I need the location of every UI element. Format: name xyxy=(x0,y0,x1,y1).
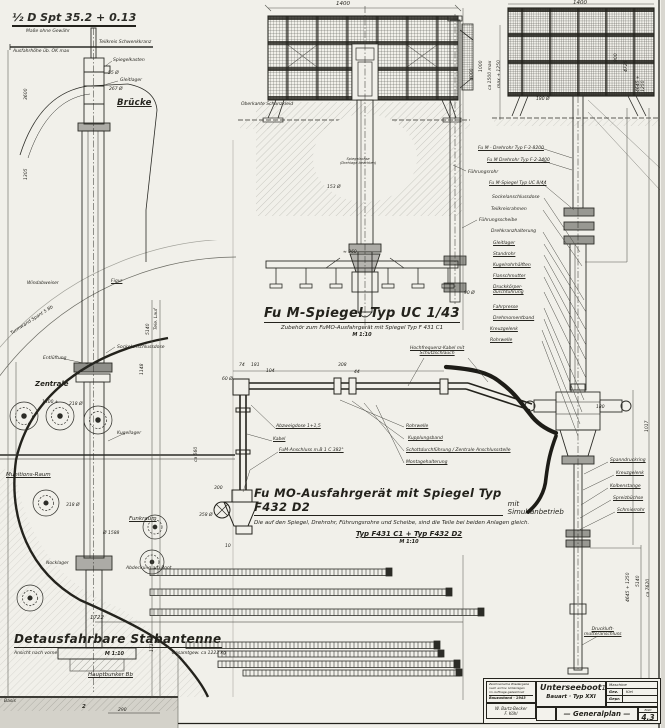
annotation-label: Brücke xyxy=(117,99,152,109)
annotation-label: Kupplungsband xyxy=(408,436,443,441)
annotation-label: Rohrwelle xyxy=(490,338,512,343)
author-name: F. Köhl xyxy=(487,711,535,716)
annotation-label: 4645 + 1250 xyxy=(636,63,646,92)
annotation-label: Abzweigdose 1+1,5 xyxy=(276,424,321,429)
annotation-label: ≈ 960 xyxy=(343,250,357,255)
annotation-label: Hochfrequenz-Kabel mit Schutzschlauch xyxy=(410,346,464,356)
annotation-label: Flanschmutter xyxy=(493,274,526,279)
annotation-label: Spiegelachse (Drehlage beachten) xyxy=(340,157,376,165)
annotation-label: Oberkante Schanzkleid xyxy=(241,102,293,107)
annotation-label: 1400 xyxy=(336,1,350,7)
annotation-label: Sockelanschlussdose xyxy=(117,345,165,350)
annotation-label: ca 1500 max xyxy=(488,61,493,90)
annotation-label: Sockelanschlussdose xyxy=(492,195,540,200)
annotation-label: 267 Ø xyxy=(109,87,123,92)
annotation-label: Kugelrohrhälften xyxy=(493,263,531,268)
title-block-stamp: Zeichnerische Wiedergabe nach archiv. Un… xyxy=(486,681,536,703)
annotation-label: FuM-Anschluss m.B 1 C 382° xyxy=(279,448,344,453)
annotation-label: Fahrpresse xyxy=(493,305,518,310)
annotation-label: 900 xyxy=(614,53,619,62)
annotation-label: ca 560 xyxy=(194,447,199,462)
annotation-label: Spiegelkasten xyxy=(113,58,145,63)
annotation-label: Standrohr xyxy=(493,252,515,257)
annotation-label: Fu M - Drehrohr Typ F-3-8200 xyxy=(478,146,544,151)
drawn-value: Kiel xyxy=(623,689,657,695)
annotation-label: Ø 1588 xyxy=(103,531,119,536)
annotation-label: 3600 xyxy=(24,89,29,100)
annotation-label: Abdeckung am Boot xyxy=(126,566,172,571)
annotation-label: Ausfahrhöhe üb. OK max xyxy=(13,49,69,54)
annotation-label: Zentrale xyxy=(35,380,68,388)
annotation-label: Gleitlager xyxy=(493,241,515,246)
annotation-label: Fu M Drehrohr Typ F-2-2400 xyxy=(487,158,550,163)
annotation-label: 44 xyxy=(354,370,360,375)
annotation-label: 1148 xyxy=(140,364,145,375)
annotation-label: Spreizbüchse xyxy=(613,496,643,501)
annotation-label: 74 xyxy=(239,363,245,368)
annotation-label: 104 xyxy=(266,369,275,374)
annotation-label: 1305 xyxy=(24,169,29,180)
annotation-label: 4645 + 1250 xyxy=(626,572,631,602)
title-block-empty-cell xyxy=(536,707,556,721)
annotation-label: Fu M-Spiegel Typ UC 8/44 xyxy=(489,181,547,186)
annotation-label: Funkraum xyxy=(129,516,157,522)
title-block: Zeichnerische Wiedergabe nach archiv. Un… xyxy=(483,678,661,724)
annotation-label: Kreuzgelenk xyxy=(490,327,518,332)
stamp-year: Bauzustand · 1943 xyxy=(489,695,533,700)
annotation-label: Turmwand Spant 5 Bb xyxy=(10,305,55,336)
annotation-label: Figur xyxy=(111,279,122,284)
annotation-label: 5140 xyxy=(636,576,641,587)
annotation-label: Nocklager xyxy=(46,561,69,566)
stamp-line: im Auftrage gezeichnet xyxy=(489,691,533,695)
annotation-layer: Teilkreis SchwenkkranzAusfahrhöhe üb. OK… xyxy=(0,0,665,728)
blueprint-sheet: ½ D Spt 35.2 + 0.13 Maße ohne Gewähr Fu … xyxy=(0,0,665,728)
checked-value xyxy=(623,696,657,702)
title-block-main: Unterseeboot 1 Bauart · Typ XXI xyxy=(536,681,606,707)
annotation-label: 1017 xyxy=(645,421,650,432)
annotation-label: Montagehalterung xyxy=(406,460,447,465)
annotation-label: 358 Ø xyxy=(199,513,213,518)
annotation-label: 290 xyxy=(118,708,127,713)
sheet-number-box: Blatt 4.3 xyxy=(638,707,658,721)
annotation-label: Teilkreisrahmen xyxy=(491,207,527,212)
annotation-label: Schottdurchführung / Zentrale Anschlusss… xyxy=(406,448,511,453)
annotation-label: Drehkranzhalterung xyxy=(491,229,536,234)
sheet-number: 4.3 xyxy=(639,713,657,721)
annotation-label: Führungsscheibe xyxy=(479,218,517,223)
title-block-right: Maschine Gez. Kiel Gepr. xyxy=(606,681,658,707)
annotation-label: 1400 + xyxy=(42,400,59,405)
annotation-label: 300 xyxy=(214,486,223,491)
annotation-label: Schmierrohr xyxy=(617,508,645,513)
annotation-label: Windabweiser xyxy=(27,281,59,286)
annotation-label: Druckluft- mutteranschluss xyxy=(584,627,621,637)
annotation-label: Entlüftung xyxy=(43,356,66,361)
annotation-label: 60 Ø xyxy=(222,377,233,382)
annotation-label: 181 xyxy=(251,363,260,368)
boat-class: Bauart · Typ XXI xyxy=(540,694,602,700)
annotation-label: 90 Ø xyxy=(464,291,475,296)
annotation-label: 180 Ø xyxy=(536,97,550,102)
annotation-label: Tele. Lauf xyxy=(154,308,159,330)
annotation-label: 2 xyxy=(82,704,86,710)
annotation-label: Basis xyxy=(4,699,16,704)
boat-title: Unterseeboot xyxy=(540,683,602,692)
annotation-label: 218 Ø xyxy=(69,402,83,407)
annotation-label: Rohrwelle xyxy=(406,424,428,429)
plan-title: — Generalplan — xyxy=(556,707,638,721)
annotation-label: Kabel xyxy=(273,437,285,442)
annotation-label: Druckkörper- durchführung xyxy=(493,285,524,295)
annotation-label: 180 xyxy=(596,405,605,410)
annotation-label: 318 Ø xyxy=(66,503,80,508)
annotation-label: 4000 xyxy=(470,69,475,80)
annotation-label: Gleitlager xyxy=(120,78,142,83)
annotation-label: max + 1250 xyxy=(497,60,502,88)
annotation-label: Spanndruckring xyxy=(610,458,646,463)
drawn-label: Gez. xyxy=(607,689,623,695)
annotation-label: 1722 xyxy=(90,615,104,621)
annotation-label: 5140 xyxy=(146,324,151,335)
annotation-label: 308 xyxy=(338,363,347,368)
annotation-label: Drehmomentband xyxy=(493,316,534,321)
annotation-label: 10 xyxy=(225,544,231,549)
annotation-label: 1717 xyxy=(150,641,155,652)
annotation-label: Kolbenstange xyxy=(610,484,641,489)
annotation-label: Kreuzgelenk xyxy=(616,471,644,476)
annotation-label: 55 Ø xyxy=(108,71,119,76)
annotation-label: 1000 xyxy=(479,61,484,72)
annotation-label: 1400 xyxy=(573,0,587,6)
right-col-header: Maschine xyxy=(607,682,657,689)
annotation-label: Hauptbunker Bb xyxy=(88,672,133,678)
annotation-label: 153 Ø xyxy=(327,185,341,190)
annotation-label: 4725 xyxy=(624,61,629,72)
checked-label: Gepr. xyxy=(607,696,623,702)
title-block-authors: W. Bartz-Becker F. Köhl xyxy=(486,703,536,719)
annotation-label: Teilkreis Schwenkkranz xyxy=(99,40,151,45)
annotation-label: ca 7620 xyxy=(646,579,651,597)
annotation-label: Munitions-Raum xyxy=(6,472,51,478)
annotation-label: Führungsrohr xyxy=(468,170,498,175)
annotation-label: Kugellager xyxy=(117,431,141,436)
